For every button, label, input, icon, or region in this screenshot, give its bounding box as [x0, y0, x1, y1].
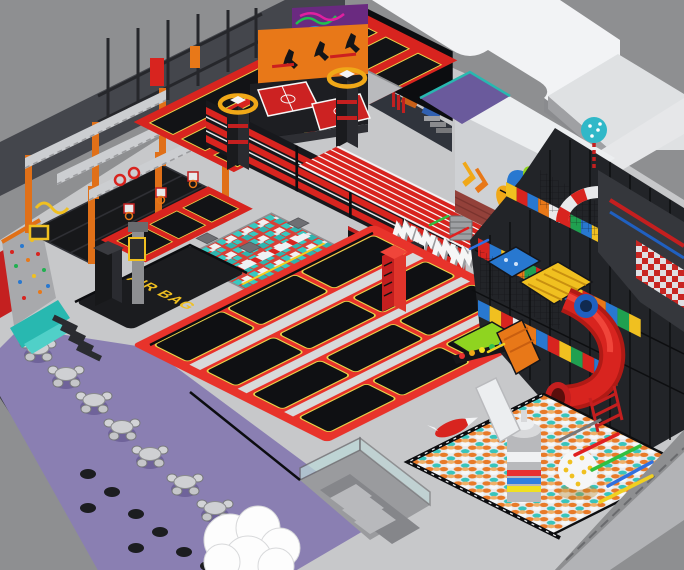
court-tower: [380, 245, 408, 312]
trampoline-park-render: SQUAD UP: [0, 0, 684, 570]
polka-dot-ball: [558, 450, 598, 500]
yellow-sign: [30, 226, 48, 239]
